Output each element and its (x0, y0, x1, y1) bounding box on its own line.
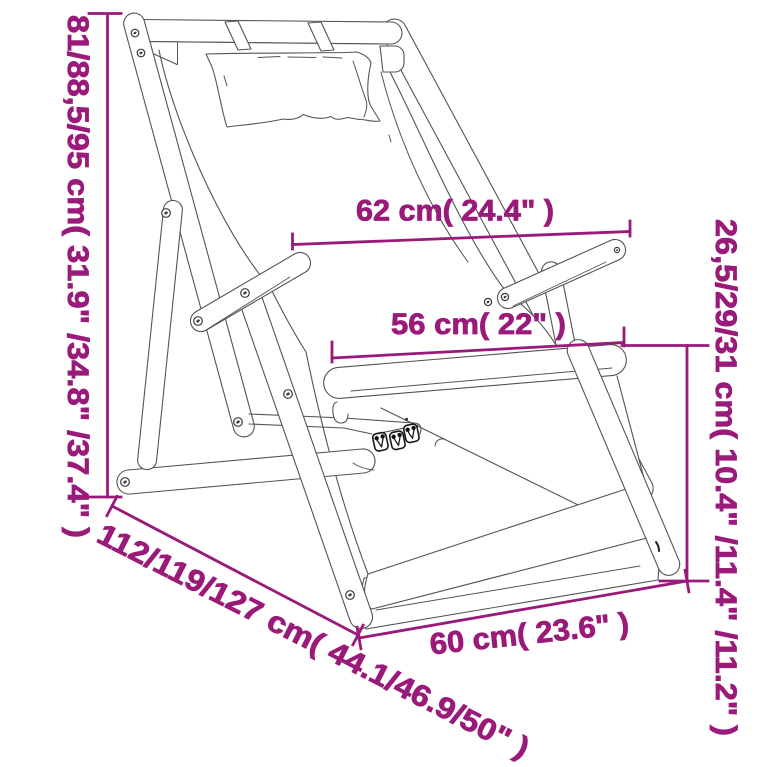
svg-text:26,5/29/31 cm( 10.4" /11.4" /1: 26,5/29/31 cm( 10.4" /11.4" /11.2" ) (709, 219, 742, 736)
svg-text:62 cm( 24.4" ): 62 cm( 24.4" ) (356, 195, 554, 228)
svg-text:81/88,5/95 cm( 31.9" /34.8" /3: 81/88,5/95 cm( 31.9" /34.8" /37.4" ) (61, 15, 94, 538)
svg-text:56 cm( 22" ): 56 cm( 22" ) (391, 308, 566, 341)
